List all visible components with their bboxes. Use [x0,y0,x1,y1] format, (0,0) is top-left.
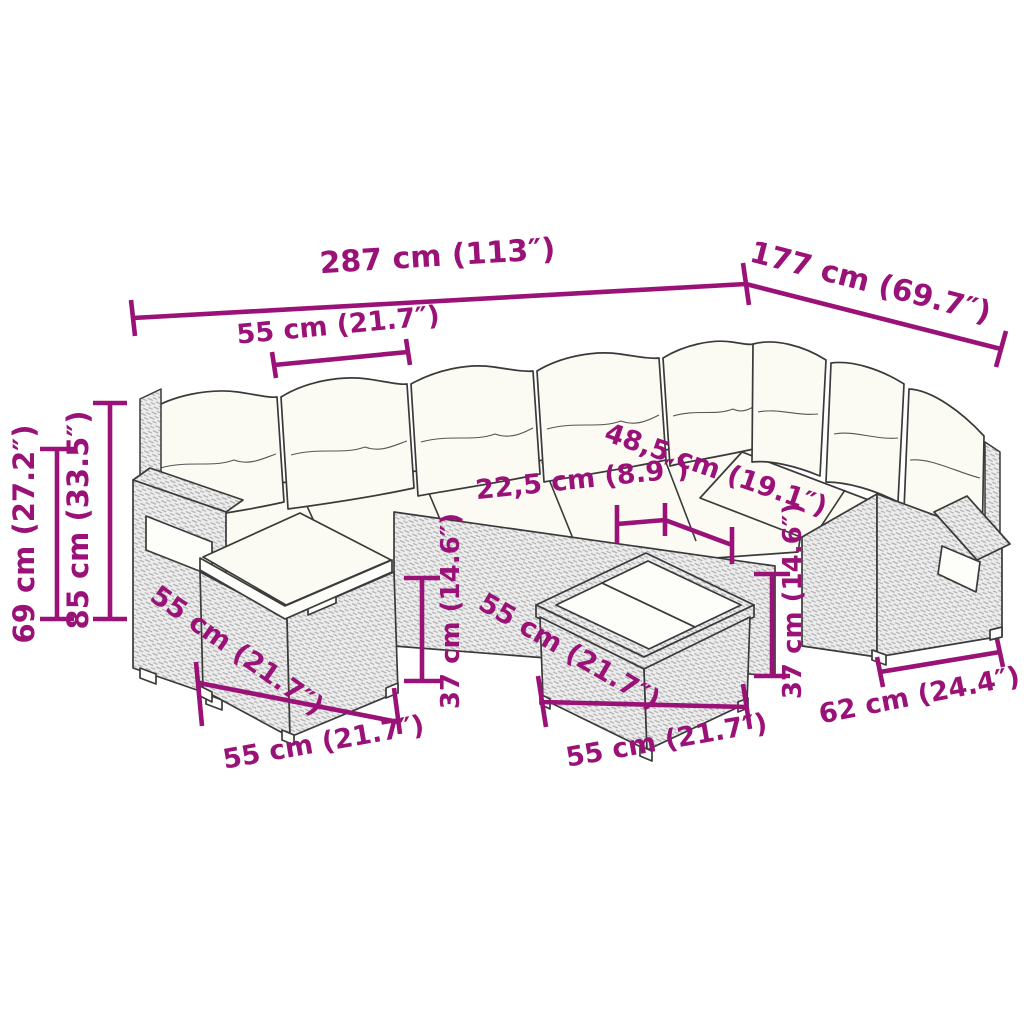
dim-label-seat-height-right: 37 cm (14.6″) [778,503,808,699]
dim-label-armrest-height: 69 cm (27.2″) [7,425,41,644]
dim-label-seat-height-left: 37 cm (14.6″) [436,513,466,709]
dim-label-total-height: 85 cm (33.5″) [61,411,95,630]
diagram-canvas: 287 cm (113″) 177 cm (69.7″) 55 cm (21.7… [0,0,1024,1024]
product-dimension-diagram: 287 cm (113″) 177 cm (69.7″) 55 cm (21.7… [0,0,1024,1024]
dim-total-height-line [93,403,127,619]
dim-label-total-width: 287 cm (113″) [319,232,557,281]
dim-label-corner-width: 62 cm (24.4″) [816,661,1022,730]
